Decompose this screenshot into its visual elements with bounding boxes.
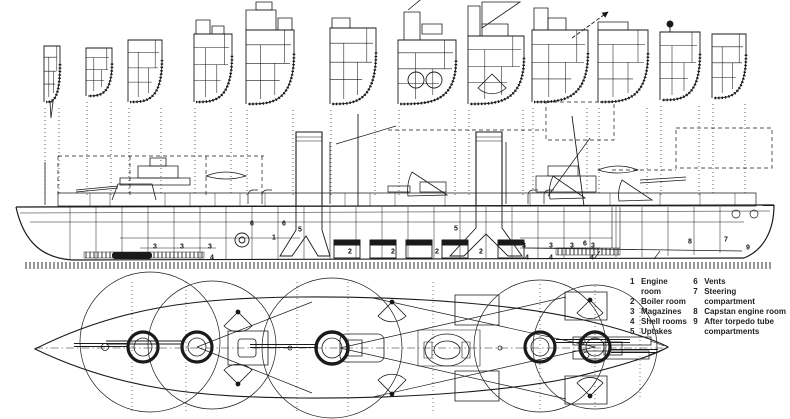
compartment-number: 1 <box>272 235 276 242</box>
compartment-number: 2 <box>435 249 439 256</box>
legend-item: 4Shell rooms <box>630 317 689 327</box>
cross-section-4 <box>194 20 232 196</box>
legend-item-label: After torpedo tube compartments <box>704 317 774 337</box>
legend-item-label: Capstan engine room <box>704 307 786 317</box>
compartment-number: 3 <box>153 244 157 251</box>
ship-plans-drawing <box>0 0 790 419</box>
compartment-number: 3 <box>549 243 553 250</box>
legend-item: 8Capstan engine room <box>693 307 788 317</box>
cross-section-6 <box>330 18 376 196</box>
legend-item-label: Boiler room <box>641 297 686 307</box>
boilers <box>334 240 524 258</box>
legend-item-number: 5 <box>630 327 641 337</box>
compartment-number: 4 <box>549 255 553 262</box>
legend-item: 9After torpedo tube compartments <box>693 317 788 337</box>
legend-item-label: Engine room <box>641 277 689 297</box>
legend: 1Engine room2Boiler room3Magazines4Shell… <box>630 277 788 337</box>
legend-item: 3Magazines <box>630 307 689 317</box>
legend-item-number: 1 <box>630 277 641 297</box>
legend-item: 7Steering compartment <box>693 287 788 307</box>
compartment-number: 7 <box>724 237 728 244</box>
compartment-number: 2 <box>348 249 352 256</box>
compartment-number: 6 <box>583 241 587 248</box>
compartment-number: 6 <box>282 221 286 228</box>
legend-item: 5Uptakes <box>630 327 689 337</box>
legend-item-number: 3 <box>630 307 641 317</box>
cross-section-7 <box>398 0 456 196</box>
compartment-number: 3 <box>591 243 595 250</box>
legend-item: 6Vents <box>693 277 788 287</box>
profile-internal-structure <box>30 207 744 259</box>
compartment-number: 2 <box>391 249 395 256</box>
compartment-number: 5 <box>454 226 458 233</box>
ship-plans-diagram: 1Engine room2Boiler room3Magazines4Shell… <box>0 0 790 419</box>
compartment-number: 4 <box>210 255 214 262</box>
profile-machinery <box>84 206 742 259</box>
cross-section-3 <box>128 40 162 196</box>
cross-section-11 <box>660 21 700 196</box>
legend-item-number: 6 <box>693 277 704 287</box>
legend-item-label: Steering compartment <box>704 287 788 307</box>
legend-item-number: 7 <box>693 287 704 307</box>
compartment-number: 2 <box>479 249 483 256</box>
legend-item-label: Magazines <box>641 307 681 317</box>
legend-column-1: 1Engine room2Boiler room3Magazines4Shell… <box>630 277 689 337</box>
profile-superstructure <box>58 114 758 218</box>
legend-column-2: 6Vents7Steering compartment8Capstan engi… <box>693 277 788 337</box>
compartment-number: 5 <box>298 227 302 234</box>
legend-item-label: Uptakes <box>641 327 672 337</box>
cross-section-5 <box>246 2 294 196</box>
legend-item-number: 2 <box>630 297 641 307</box>
cross-sections-row <box>44 0 746 196</box>
fore-turret <box>76 158 190 200</box>
plan-hull-outline <box>35 297 668 398</box>
projection-lines <box>58 102 772 196</box>
legend-item-label: Vents <box>704 277 725 287</box>
derrick-arrow <box>572 12 608 38</box>
compartment-number: 4 <box>525 255 529 262</box>
funnels <box>296 132 506 206</box>
legend-item-number: 8 <box>693 307 704 317</box>
plan-view <box>35 272 668 418</box>
legend-item-label: Shell rooms <box>641 317 687 327</box>
compartment-number: 8 <box>688 239 692 246</box>
legend-item: 2Boiler room <box>630 297 689 307</box>
compartment-number: 9 <box>746 245 750 252</box>
cross-section-1 <box>44 46 60 196</box>
legend-item-number: 4 <box>630 317 641 327</box>
legend-item-number: 9 <box>693 317 704 337</box>
compartment-number: 3 <box>208 244 212 251</box>
compartment-number: 3 <box>522 243 526 250</box>
compartment-number: 3 <box>180 244 184 251</box>
waterline-hatching <box>24 262 772 269</box>
cross-section-12 <box>712 34 746 196</box>
deck-fittings <box>206 166 758 218</box>
legend-item: 1Engine room <box>630 277 689 297</box>
cross-section-2 <box>86 48 112 196</box>
gun-arcs <box>80 272 657 418</box>
compartment-number: 6 <box>250 221 254 228</box>
compartment-number: 4 <box>590 255 594 262</box>
compartment-number: 3 <box>570 243 574 250</box>
